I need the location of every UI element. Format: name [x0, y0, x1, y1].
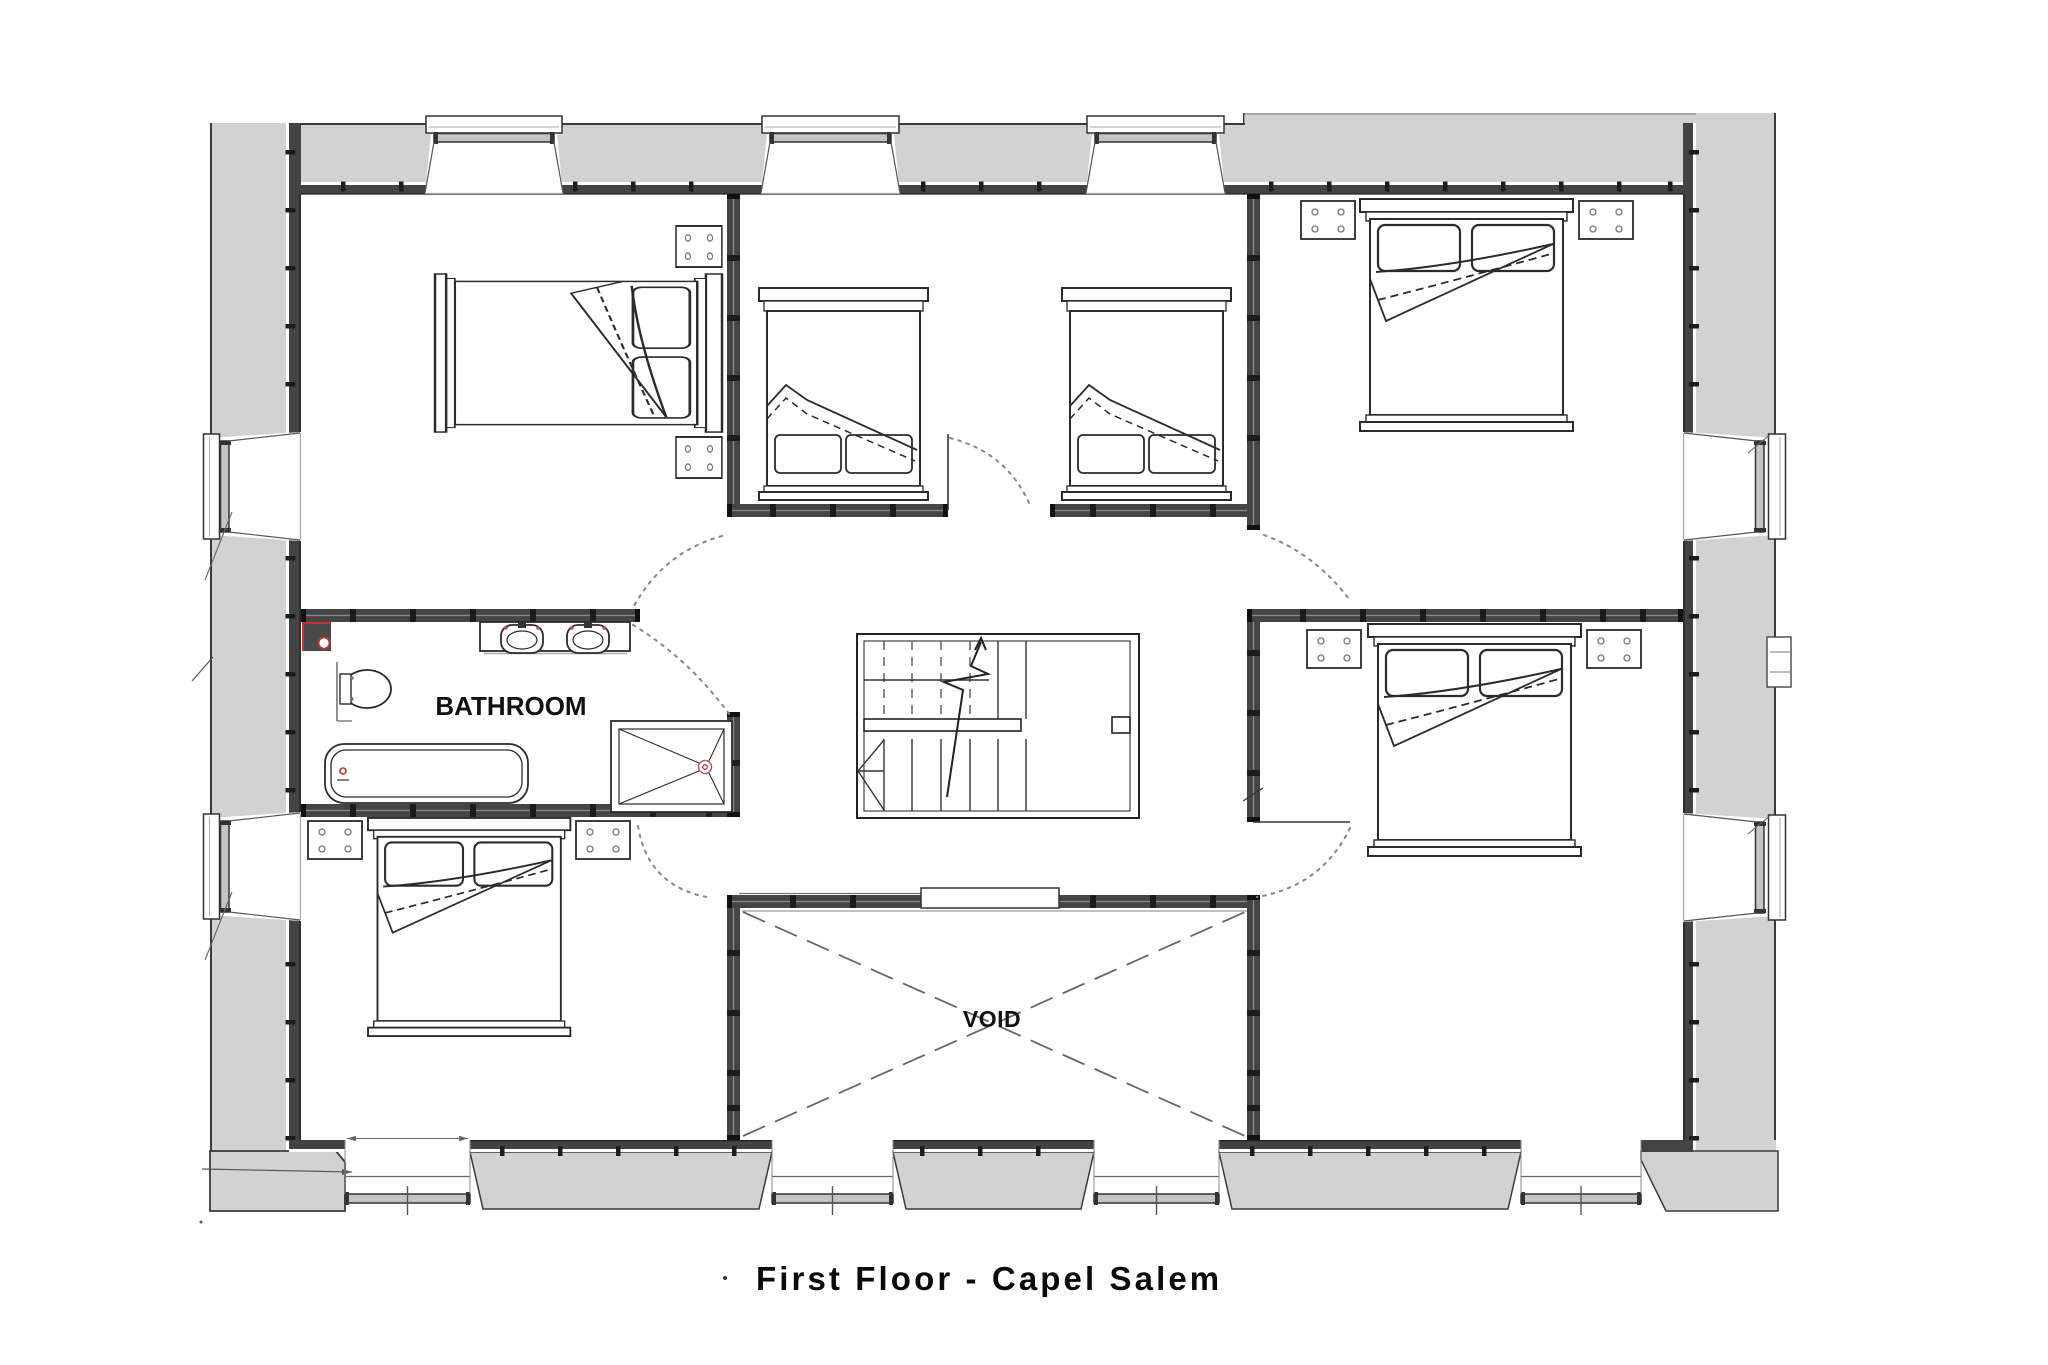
svg-text:BATHROOM: BATHROOM [435, 691, 586, 721]
svg-text:First Floor - Capel Salem: First Floor - Capel Salem [756, 1260, 1222, 1297]
svg-text:VOID: VOID [963, 1006, 1021, 1032]
